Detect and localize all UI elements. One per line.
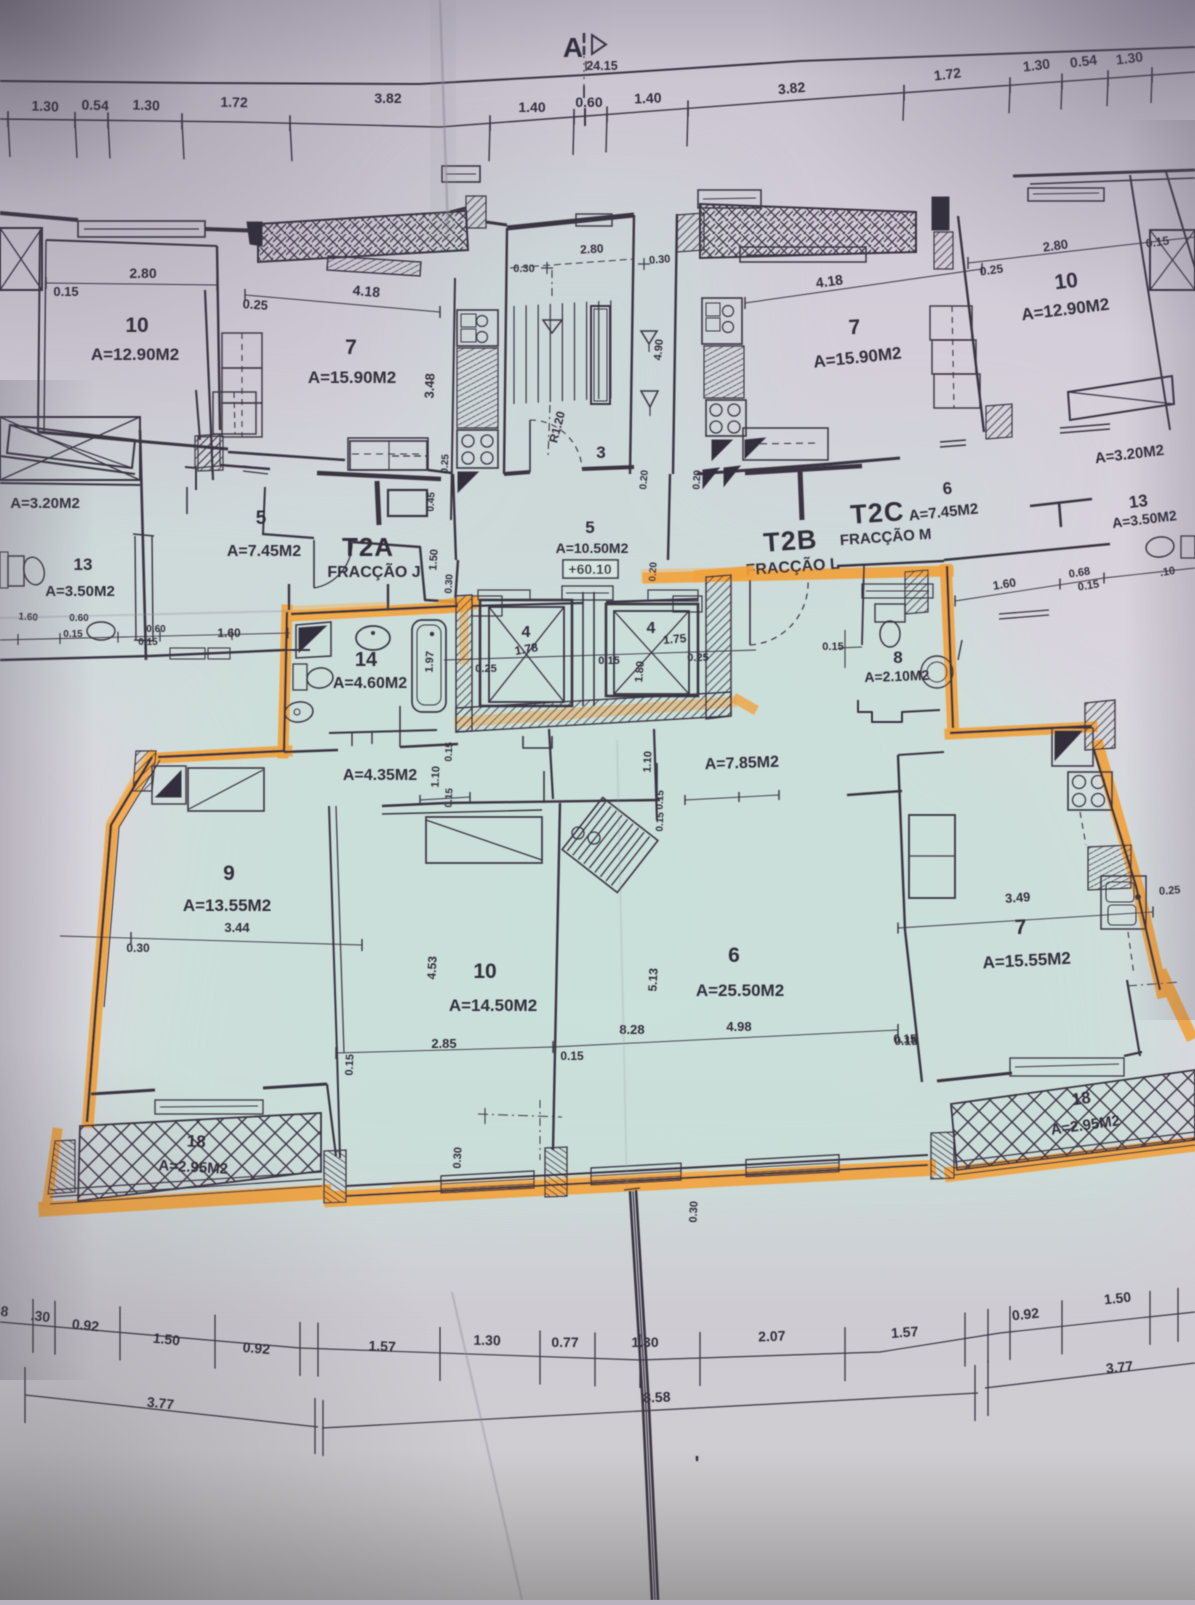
svg-text:4.53: 4.53 (424, 955, 439, 979)
svg-text:2.07: 2.07 (758, 1328, 786, 1345)
svg-text:0.15: 0.15 (444, 741, 456, 761)
svg-text:T2B: T2B (762, 524, 818, 558)
svg-text:0.20: 0.20 (647, 561, 659, 582)
svg-text:4: 4 (647, 620, 656, 637)
svg-text:A=7.85M2: A=7.85M2 (704, 754, 779, 774)
svg-text:0.15: 0.15 (598, 655, 619, 667)
svg-text:1.97: 1.97 (423, 651, 436, 673)
svg-text:0.30: 0.30 (443, 573, 455, 594)
svg-text:6: 6 (728, 944, 740, 967)
svg-text:0.92: 0.92 (1011, 1305, 1040, 1324)
svg-text:4: 4 (522, 624, 531, 641)
svg-text:A=13.55M2: A=13.55M2 (183, 896, 271, 915)
svg-text:1.75: 1.75 (662, 631, 687, 647)
svg-text:7: 7 (1014, 916, 1027, 940)
svg-text:18: 18 (1071, 1088, 1092, 1109)
svg-text:A=2.10M2: A=2.10M2 (864, 667, 930, 685)
svg-text:1.57: 1.57 (891, 1323, 920, 1341)
svg-text:1.50: 1.50 (1103, 1289, 1132, 1308)
svg-text:+60.10: +60.10 (568, 561, 611, 577)
svg-text:0.77: 0.77 (551, 1334, 578, 1350)
svg-text:4.98: 4.98 (726, 1019, 751, 1034)
svg-text:3.44: 3.44 (224, 920, 250, 935)
svg-text:0.20: 0.20 (638, 469, 651, 490)
svg-text:T2C: T2C (849, 496, 905, 530)
svg-text:1.10: 1.10 (429, 766, 442, 788)
svg-text:0.15: 0.15 (560, 1049, 584, 1063)
svg-text:1.40: 1.40 (634, 90, 662, 107)
svg-text:0.30: 0.30 (649, 253, 671, 267)
svg-text:0.60: 0.60 (146, 624, 166, 635)
svg-text:0.15: 0.15 (893, 1032, 917, 1046)
svg-text:10: 10 (473, 960, 496, 983)
svg-text:0.30: 0.30 (687, 1201, 700, 1223)
svg-text:A=14.50M2: A=14.50M2 (449, 996, 537, 1015)
svg-text:0.30: 0.30 (126, 941, 150, 955)
svg-text:A=4.60M2: A=4.60M2 (333, 675, 407, 692)
svg-text:8: 8 (893, 648, 902, 667)
svg-text:6: 6 (942, 479, 953, 499)
svg-text:5.13: 5.13 (645, 967, 660, 991)
svg-text:1.80: 1.80 (633, 661, 647, 683)
svg-text:14: 14 (355, 649, 378, 671)
svg-text:FRACÇÃO J: FRACÇÃO J (327, 561, 420, 581)
svg-text:4.90: 4.90 (652, 339, 666, 361)
svg-text:3.49: 3.49 (1005, 889, 1031, 906)
svg-text:3.77: 3.77 (1105, 1358, 1134, 1377)
svg-text:1.10: 1.10 (641, 751, 654, 773)
svg-text:A=4.35M2: A=4.35M2 (343, 767, 417, 784)
svg-text:9: 9 (223, 862, 235, 885)
svg-text:0.15: 0.15 (822, 641, 843, 653)
svg-text:0.15: 0.15 (138, 637, 158, 648)
svg-text:A=25.50M2: A=25.50M2 (696, 981, 784, 1000)
svg-text:0.25: 0.25 (475, 663, 496, 675)
svg-text:0.20: 0.20 (691, 469, 703, 490)
svg-text:1.60: 1.60 (217, 626, 241, 640)
